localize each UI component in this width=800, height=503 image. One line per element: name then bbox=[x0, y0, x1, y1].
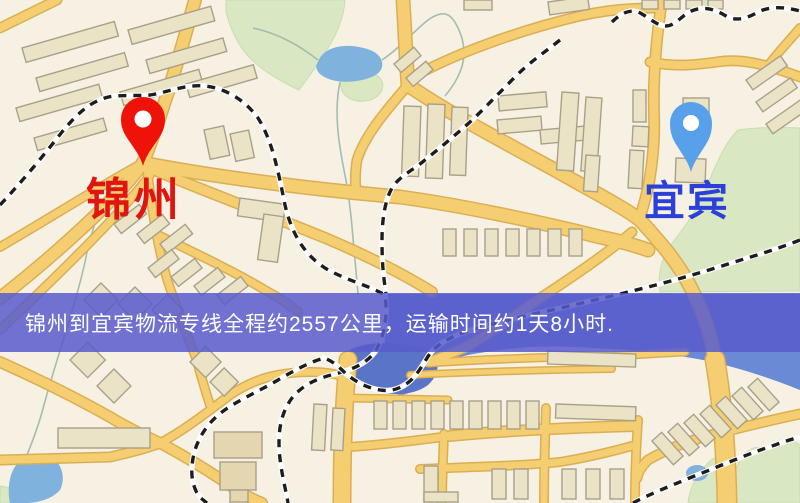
map-canvas[interactable]: 锦州 宜宾 锦州到宜宾物流专线全程约2557公里，运输时间约1天8小时. bbox=[0, 0, 800, 503]
map-background bbox=[0, 0, 800, 503]
destination-city-label: 宜宾 bbox=[644, 181, 730, 222]
origin-city-label: 锦州 bbox=[86, 177, 182, 222]
route-info-banner: 锦州到宜宾物流专线全程约2557公里，运输时间约1天8小时. bbox=[0, 293, 800, 352]
origin-pin-icon[interactable] bbox=[121, 97, 165, 166]
route-info-text: 锦州到宜宾物流专线全程约2557公里，运输时间约1天8小时. bbox=[0, 308, 614, 338]
